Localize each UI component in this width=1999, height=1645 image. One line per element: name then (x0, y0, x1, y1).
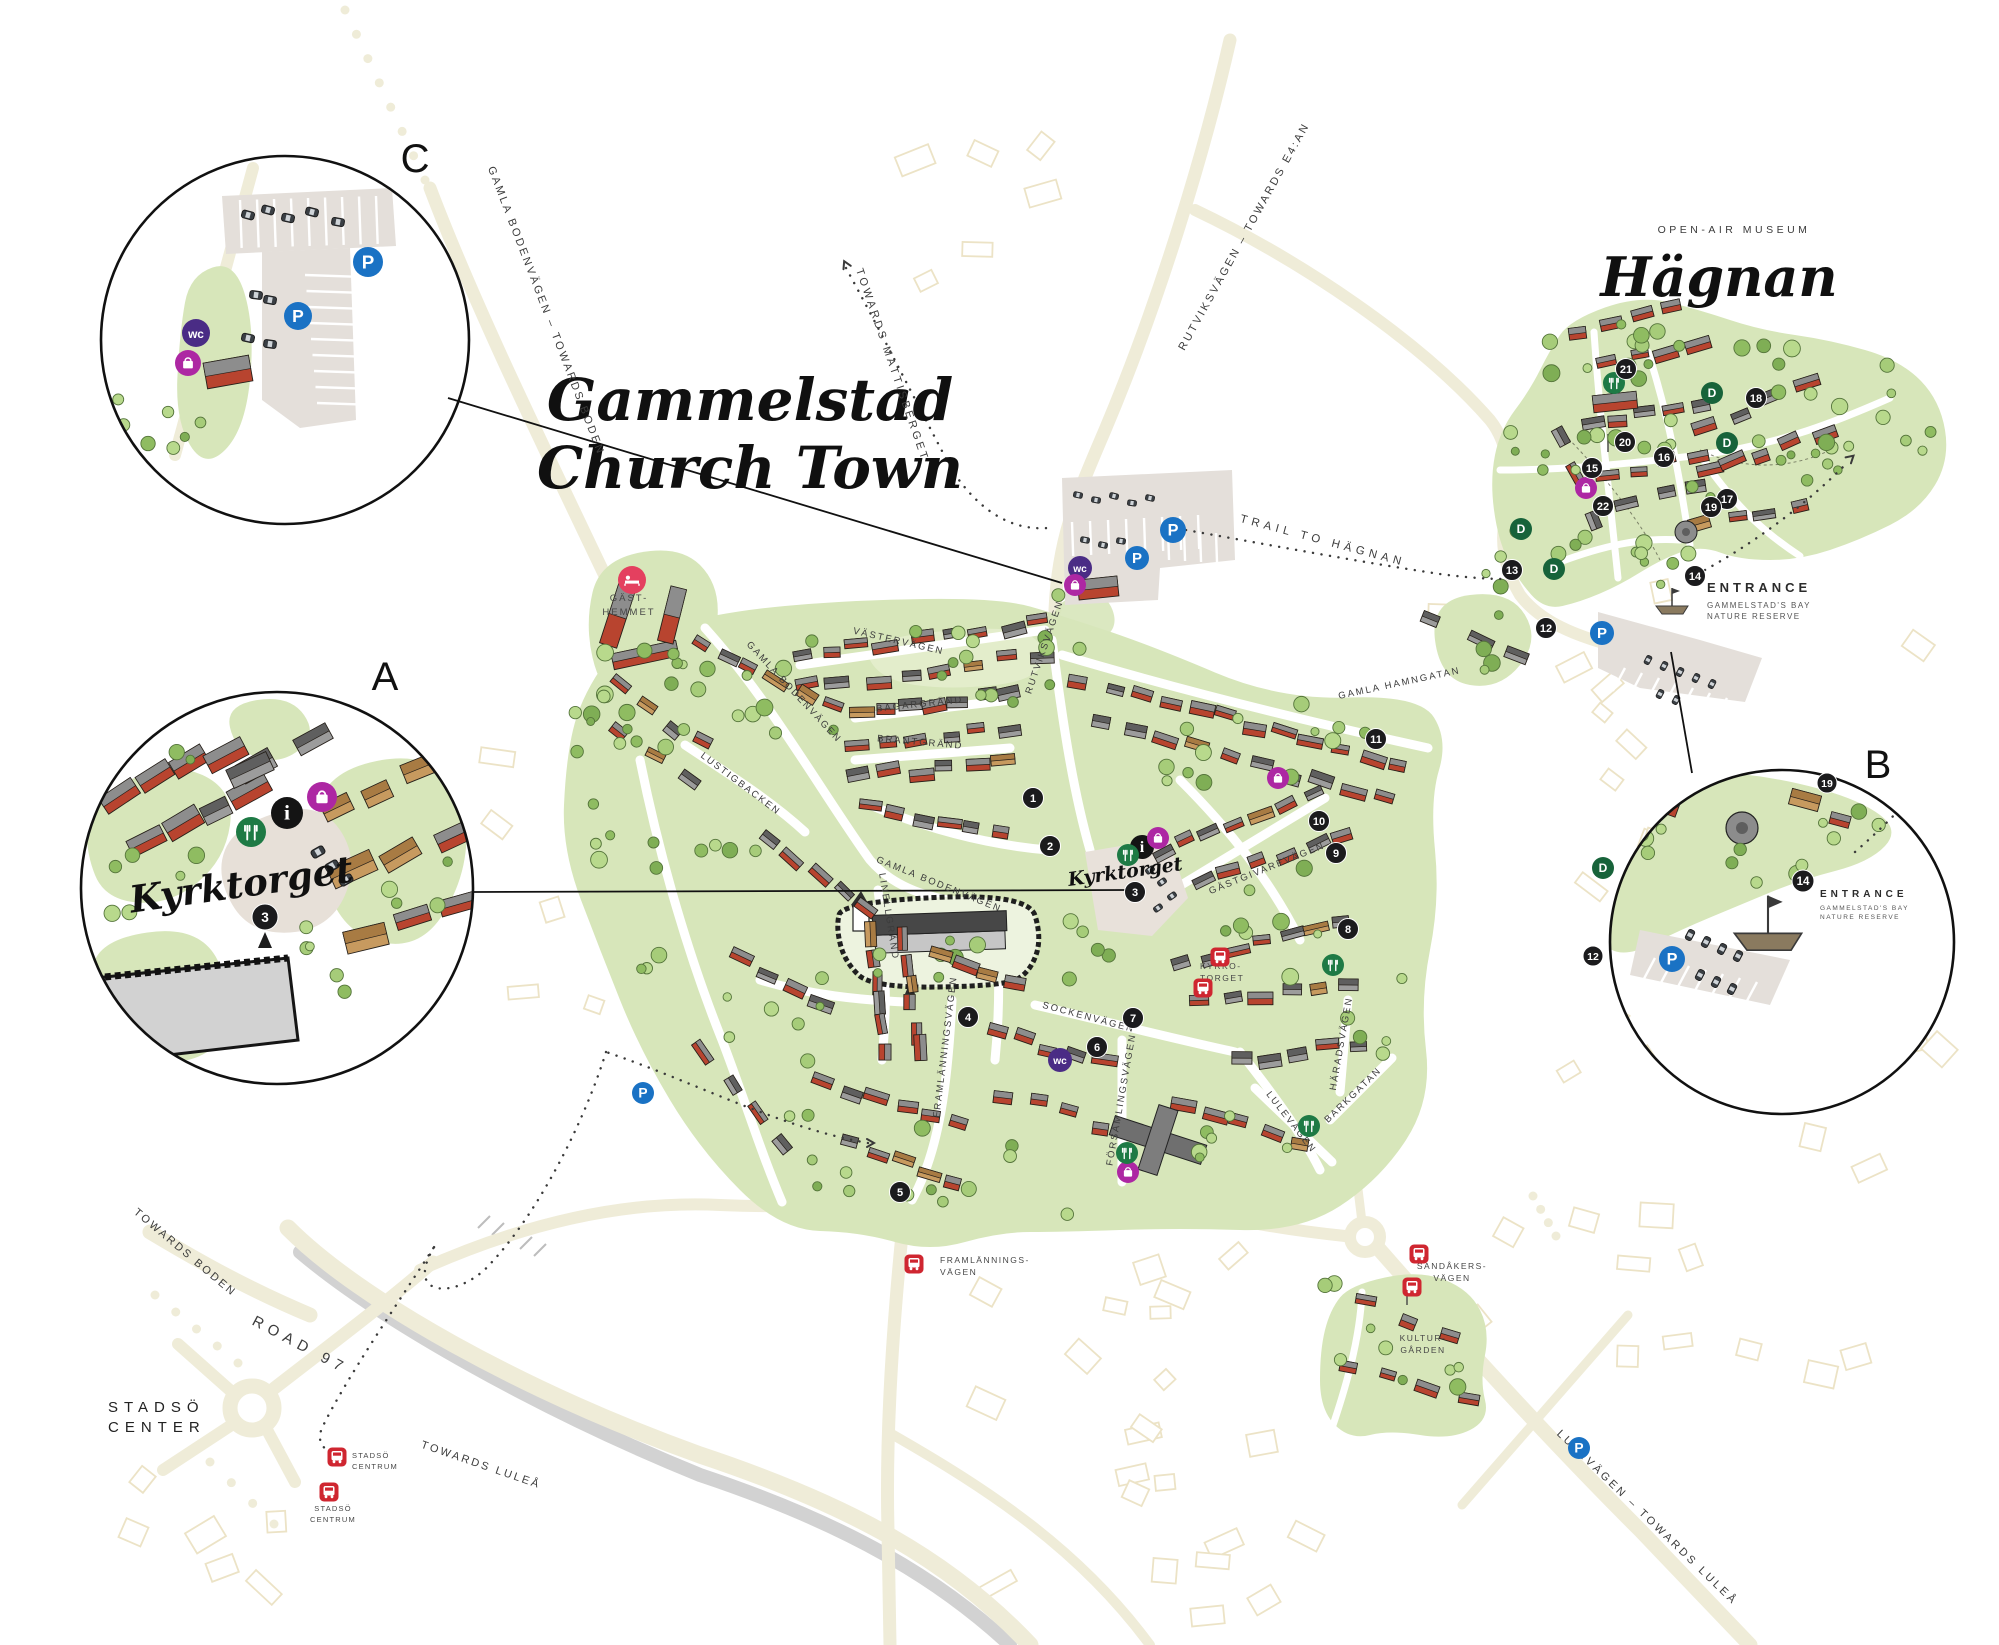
unmapped-house (1246, 1430, 1278, 1457)
parking-stripe (1126, 519, 1127, 553)
tree (959, 650, 973, 664)
parking-stripe (1198, 515, 1199, 549)
building (904, 995, 915, 1010)
museum-kicker: OPEN-AIR MUSEUM (1658, 224, 1811, 236)
tree (162, 406, 173, 417)
unmapped-house (508, 984, 539, 999)
tree (637, 643, 652, 658)
building (962, 821, 979, 835)
restaurant-icon (1117, 844, 1139, 866)
info-glyph: i (284, 801, 290, 825)
tree (1196, 774, 1212, 790)
place-label: VÄGEN (1433, 1273, 1470, 1283)
unmapped-house (1152, 1558, 1178, 1584)
tree (665, 677, 679, 691)
parking-stripe (307, 291, 353, 293)
building (902, 670, 921, 681)
map-canvas: ABCGammelstadChurch TownOPEN-AIR MUSEUMH… (0, 0, 1999, 1645)
parking-stripe (308, 198, 310, 246)
marker-number: 14 (1797, 876, 1810, 888)
tree (1311, 728, 1319, 736)
parking-stripe (257, 200, 259, 248)
parking-stripe (359, 197, 361, 245)
road-dots (1529, 1192, 1538, 1201)
tree (1818, 818, 1827, 827)
tree (1656, 824, 1666, 834)
map-marker-4: 4 (958, 1007, 979, 1028)
tree (722, 842, 738, 858)
building (1287, 1047, 1308, 1063)
unmapped-house (1799, 1123, 1826, 1151)
map-marker-10: 10 (1309, 811, 1330, 832)
marker-number: 12 (1540, 623, 1552, 635)
tree (1073, 642, 1086, 655)
tree (109, 860, 121, 872)
tree (1052, 589, 1065, 602)
tree (590, 838, 601, 849)
tree (1282, 968, 1299, 985)
building (873, 991, 885, 1015)
parking-stripe (1144, 518, 1145, 552)
building (1253, 935, 1271, 946)
tree (1376, 1047, 1389, 1060)
marker-number: 9 (1333, 848, 1339, 860)
parking-glyph: P (1168, 521, 1179, 539)
building (993, 1091, 1013, 1105)
tree (1325, 733, 1341, 749)
tree (937, 671, 947, 681)
tree (948, 658, 958, 668)
tree (873, 948, 886, 961)
tree (606, 831, 615, 840)
tree (807, 1155, 817, 1165)
tree (1454, 1362, 1464, 1372)
inset-letter-B: B (1865, 743, 1892, 787)
tree (1583, 364, 1592, 373)
place-label: SANDÅKERS- (1417, 1261, 1487, 1271)
d-glyph: D (1723, 436, 1732, 450)
tree (1681, 546, 1696, 561)
tree (806, 635, 818, 647)
tree (1494, 611, 1503, 620)
place-label: GÄST- (610, 593, 649, 604)
marker-number: 1 (1030, 793, 1036, 805)
tree (104, 905, 120, 921)
building (1224, 991, 1242, 1004)
marker-number: 6 (1094, 1042, 1100, 1054)
tree (769, 727, 781, 739)
unmapped-house (1617, 1346, 1638, 1367)
map-marker-19: 19 (1817, 773, 1837, 793)
marker-number: 8 (1345, 924, 1351, 936)
map-marker-9: 9 (1326, 843, 1347, 864)
tree (1334, 1354, 1346, 1366)
tree (1641, 846, 1654, 859)
tree (195, 417, 206, 428)
tree (391, 898, 401, 908)
tree (945, 936, 954, 945)
parked-car (1080, 536, 1090, 543)
tree (1650, 324, 1665, 339)
building (824, 647, 841, 658)
road-dots (227, 1478, 236, 1487)
tree (750, 845, 762, 857)
tree (1787, 451, 1795, 459)
tree (1880, 358, 1894, 372)
tree (1751, 877, 1763, 889)
tree (1570, 539, 1581, 550)
tree (1244, 885, 1255, 896)
marker-number: 2 (1047, 841, 1053, 853)
marker-number: 16 (1658, 452, 1670, 464)
entrance-line1: GAMMELSTAD'S BAY (1707, 601, 1811, 610)
marker-number: 3 (261, 910, 269, 925)
building (1310, 982, 1328, 996)
tree (723, 993, 731, 1001)
building (997, 649, 1017, 661)
map-marker-7: 7 (1123, 1008, 1144, 1029)
museum-title: Hägnan (1598, 245, 1837, 309)
map-marker-19: 19 (1701, 497, 1722, 518)
restaurant-icon (1116, 1142, 1138, 1164)
tree (125, 848, 139, 862)
road-dots (386, 103, 395, 112)
bus-stop-icon (905, 1255, 924, 1274)
tree (1925, 426, 1936, 437)
tree (1397, 973, 1407, 983)
map-marker-12: 12 (1536, 618, 1557, 639)
tree (1590, 428, 1605, 443)
parking-stripe (274, 199, 276, 247)
tree (1686, 481, 1698, 493)
tree (1282, 1143, 1292, 1153)
map-marker-15: 15 (1582, 458, 1603, 479)
tree (874, 969, 883, 978)
d-glyph: D (1599, 861, 1608, 875)
tree (1077, 926, 1089, 938)
place-label: CENTER (108, 1419, 206, 1436)
tree (1818, 434, 1834, 450)
tree (1664, 414, 1677, 427)
road-dots (171, 1308, 180, 1317)
inset-letter-A: A (372, 655, 399, 699)
tree (1831, 398, 1847, 414)
restaurant-icon (236, 817, 266, 847)
parked-car (1127, 500, 1137, 507)
place-label: FRAMLÄNNINGS- (940, 1255, 1030, 1265)
tree (1757, 339, 1771, 353)
place-label: CENTRUM (310, 1515, 356, 1524)
building (845, 740, 870, 752)
round-pavilion (1675, 521, 1697, 543)
parking-glyph: P (638, 1086, 647, 1101)
tree (1449, 1379, 1465, 1395)
parking-glyph: P (362, 251, 375, 272)
parking-icon: P (353, 247, 383, 277)
tree (784, 1111, 795, 1122)
parking-glyph: P (1574, 1441, 1583, 1456)
shop-icon (1575, 477, 1597, 499)
unmapped-house (1190, 1605, 1224, 1626)
map-marker-14: 14 (1792, 870, 1814, 892)
wc-icon: wc (182, 319, 210, 347)
tree (764, 1002, 778, 1016)
tree (180, 432, 189, 441)
road-dots (352, 30, 361, 39)
tree (966, 635, 979, 648)
tree (813, 1182, 822, 1191)
tree (1734, 843, 1746, 855)
tree (840, 1167, 852, 1179)
tree (1382, 1037, 1391, 1046)
tree (1353, 1030, 1366, 1043)
map-marker-22: 22 (1593, 496, 1614, 517)
tree (1811, 449, 1820, 458)
tree (1008, 697, 1019, 708)
parking-glyph: P (1132, 550, 1142, 567)
marker-number: 19 (1821, 778, 1833, 790)
parked-car (249, 290, 263, 300)
tree (1752, 435, 1765, 448)
tree (1538, 465, 1549, 476)
marker-number: 4 (965, 1012, 972, 1024)
tree (1233, 918, 1248, 933)
building (1283, 984, 1302, 995)
parking-stripe (313, 355, 359, 357)
bus-stop-icon (1211, 948, 1230, 967)
tree (651, 947, 667, 963)
bus-stop-icon (320, 1483, 339, 1502)
tree (1480, 665, 1489, 674)
shop-icon (1267, 767, 1289, 789)
parking-stripe (314, 371, 360, 373)
unmapped-house (1150, 1306, 1171, 1319)
tree (756, 699, 773, 716)
tree (1162, 776, 1172, 786)
wc-icon: wc (1048, 1048, 1072, 1072)
tree (792, 1018, 804, 1030)
map-marker-3: 3 (252, 904, 278, 930)
unmapped-house (1196, 1552, 1230, 1569)
road-dots (375, 78, 384, 87)
tree (1887, 389, 1896, 398)
tree (1634, 327, 1650, 343)
tree (732, 710, 744, 722)
marker-number: 14 (1689, 571, 1702, 583)
accommodation-icon (618, 566, 646, 594)
parking-icon: P (632, 1082, 654, 1104)
tree (1294, 696, 1310, 712)
marker-number: 19 (1705, 502, 1717, 514)
tree (1476, 641, 1491, 656)
tree (1667, 557, 1679, 569)
parking-glyph: P (292, 306, 304, 326)
tree (1901, 435, 1912, 446)
building (1631, 467, 1648, 477)
tree (724, 1032, 735, 1043)
building (966, 758, 990, 771)
tree (934, 972, 944, 982)
tree (691, 682, 706, 697)
building (1091, 714, 1110, 729)
road-dots (270, 1520, 279, 1529)
d-glyph: D (1708, 386, 1717, 400)
d-glyph: D (1517, 522, 1526, 536)
tree (926, 1185, 936, 1195)
tree (1844, 441, 1854, 451)
marker-number: 10 (1313, 816, 1325, 828)
road-dots (234, 1359, 243, 1368)
tree (1504, 426, 1518, 440)
tree (619, 704, 635, 720)
tree (188, 847, 204, 863)
parking-stripe (1090, 521, 1091, 555)
map-marker-2: 2 (1040, 836, 1061, 857)
road-dots (341, 6, 350, 15)
road-dots (206, 1458, 215, 1467)
place-label: HEMMET (602, 607, 655, 618)
building (864, 921, 876, 947)
tree (1493, 579, 1508, 594)
tree (801, 1054, 815, 1068)
bus-stop-icon (328, 1448, 347, 1467)
wc-glyph: wc (1052, 1056, 1067, 1067)
marker-number: 20 (1619, 437, 1631, 449)
d-marker-icon: D (1701, 382, 1723, 404)
parking-stripe (1200, 532, 1201, 562)
tree (1482, 569, 1490, 577)
tree (587, 717, 595, 725)
parking-stripe (310, 323, 356, 325)
road-dots (192, 1325, 201, 1334)
d-marker-icon: D (1510, 518, 1532, 540)
place-label: KULTUR- (1400, 1333, 1447, 1343)
parking-stripe (1108, 520, 1109, 554)
marker-number: 17 (1721, 494, 1733, 506)
tree (637, 964, 647, 974)
tree (381, 881, 397, 897)
tree (1801, 475, 1813, 487)
tree (1771, 385, 1785, 399)
tree (300, 921, 313, 934)
tree (1638, 441, 1651, 454)
building (1248, 992, 1273, 1005)
tree (1511, 447, 1519, 455)
tree (937, 1196, 948, 1207)
building (1232, 1052, 1252, 1064)
tree (1541, 450, 1549, 458)
tree (844, 1185, 855, 1196)
tree (1004, 1150, 1017, 1163)
road-dots (213, 1342, 222, 1351)
building (879, 1044, 891, 1060)
tree (1379, 1341, 1393, 1355)
tree (614, 738, 626, 750)
shop-icon (1117, 1161, 1139, 1183)
tree (623, 724, 633, 734)
tree (1872, 818, 1885, 831)
parked-car (263, 339, 277, 349)
map-marker-16: 16 (1654, 447, 1675, 468)
unmapped-house (1617, 1256, 1650, 1272)
building (1067, 674, 1087, 690)
parking-stripe (240, 200, 242, 248)
tree (1195, 1153, 1204, 1162)
tree (1796, 859, 1808, 871)
tree (816, 972, 829, 985)
d-marker-icon: D (1716, 432, 1738, 454)
map-marker-8: 8 (1338, 919, 1359, 940)
tree (1827, 832, 1840, 845)
entrance-line2: NATURE RESERVE (1820, 914, 1900, 921)
marker-number: 22 (1597, 501, 1609, 513)
tree (816, 1002, 824, 1010)
tree (1233, 713, 1243, 723)
marker-number: 11 (1370, 734, 1382, 746)
tree (961, 1181, 976, 1196)
place-label: STADSÖ (108, 1398, 205, 1416)
tree (569, 706, 581, 718)
tree (141, 436, 155, 450)
tree (330, 969, 343, 982)
tree (914, 1120, 930, 1136)
tree (648, 837, 659, 848)
marker-number: 3 (1132, 887, 1138, 899)
tree (678, 724, 690, 736)
parked-car (1116, 538, 1126, 545)
marker-number: 7 (1130, 1013, 1136, 1025)
tree (1823, 459, 1833, 469)
tree (1220, 926, 1230, 936)
entrance-title: ENTRANCE (1820, 889, 1908, 900)
tree (1091, 943, 1104, 956)
building (906, 975, 918, 993)
road-dots (363, 54, 372, 63)
tree (430, 898, 445, 913)
tree (969, 937, 985, 953)
map-marker-1: 1 (1023, 788, 1044, 809)
d-glyph: D (1550, 562, 1559, 576)
tree (1834, 466, 1843, 475)
building (992, 825, 1009, 839)
tree (588, 799, 598, 809)
parking-stripe (1072, 522, 1073, 556)
tree (668, 648, 679, 659)
tree (186, 755, 195, 764)
tree (1776, 455, 1786, 465)
parking-glyph: P (1597, 625, 1607, 642)
tree (1784, 340, 1801, 357)
marker-number: 15 (1586, 463, 1598, 475)
building (990, 754, 1015, 767)
entrance-line2: NATURE RESERVE (1707, 612, 1801, 621)
tree (1734, 340, 1750, 356)
tree (1617, 320, 1626, 329)
tree (1333, 721, 1345, 733)
building (1258, 1053, 1282, 1069)
parking-stripe (325, 198, 327, 246)
map-marker-5: 5 (890, 1182, 911, 1203)
tree (1195, 745, 1211, 761)
inset-letter-C: C (401, 137, 430, 181)
marker-number: 12 (1587, 951, 1599, 963)
marker-number: 5 (897, 1187, 903, 1199)
parking-stripe (305, 275, 351, 277)
parked-car (1091, 496, 1101, 503)
tree (910, 625, 922, 637)
tree (742, 671, 752, 681)
building (914, 1034, 927, 1060)
